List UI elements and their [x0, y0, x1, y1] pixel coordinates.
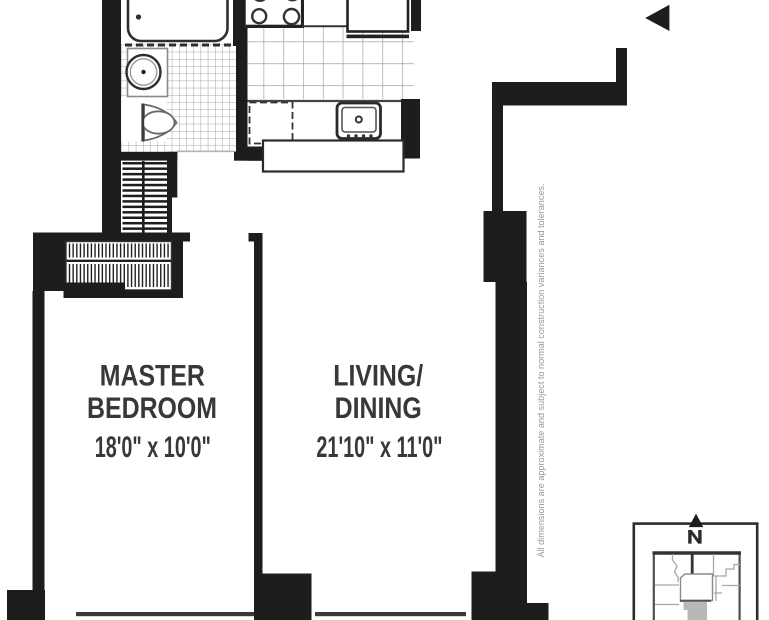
- svg-text:MASTER: MASTER: [100, 358, 205, 392]
- svg-text:21'10" x 11'0": 21'10" x 11'0": [316, 431, 442, 464]
- svg-text:18'0" x 10'0": 18'0" x 10'0": [95, 431, 211, 464]
- svg-text:LIVING/: LIVING/: [333, 358, 423, 392]
- svg-text:All dimensions are approximate: All dimensions are approximate and subje…: [536, 184, 546, 558]
- svg-text:BEDROOM: BEDROOM: [87, 391, 217, 425]
- svg-text:DINING: DINING: [335, 391, 422, 425]
